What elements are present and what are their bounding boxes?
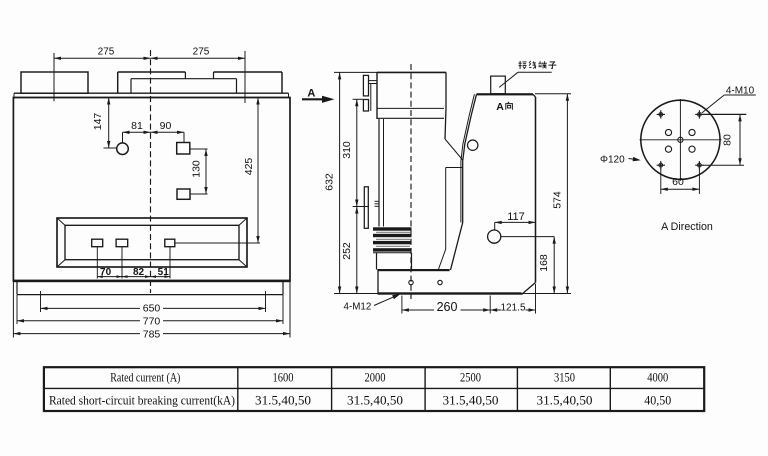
svg-text:2000: 2000 <box>365 370 386 385</box>
svg-text:650: 650 <box>143 303 161 315</box>
svg-text:3150: 3150 <box>554 370 575 385</box>
svg-text:4-M12: 4-M12 <box>344 301 372 312</box>
svg-text:130: 130 <box>191 160 203 178</box>
svg-text:770: 770 <box>143 316 161 328</box>
svg-text:4000: 4000 <box>647 370 668 385</box>
svg-text:90: 90 <box>160 120 172 132</box>
svg-text:40,50: 40,50 <box>644 392 671 407</box>
svg-text:70: 70 <box>100 267 112 278</box>
svg-text:Rated short-circuit breaking c: Rated short-circuit breaking current(kA) <box>49 392 235 407</box>
svg-text:147: 147 <box>92 113 104 131</box>
svg-text:1600: 1600 <box>273 370 294 385</box>
svg-text:31.5,40,50: 31.5,40,50 <box>443 392 499 407</box>
svg-text:275: 275 <box>193 47 210 58</box>
svg-text:275: 275 <box>98 47 115 58</box>
svg-text:252: 252 <box>341 242 353 260</box>
svg-text:60: 60 <box>672 176 684 188</box>
svg-text:121.5: 121.5 <box>500 302 525 313</box>
svg-text:A Direction: A Direction <box>661 221 713 233</box>
svg-text:A: A <box>496 101 504 113</box>
svg-text:31.5,40,50: 31.5,40,50 <box>537 392 593 407</box>
svg-text:A: A <box>307 88 315 100</box>
svg-text:574: 574 <box>551 191 563 209</box>
svg-text:310: 310 <box>341 141 353 159</box>
svg-text:80: 80 <box>722 134 734 146</box>
svg-text:425: 425 <box>243 158 255 176</box>
svg-text:Φ120: Φ120 <box>600 155 625 166</box>
svg-text:Rated current (A): Rated current (A) <box>110 370 180 385</box>
svg-text:81: 81 <box>131 120 143 132</box>
svg-text:31.5,40,50: 31.5,40,50 <box>347 392 403 407</box>
svg-text:117: 117 <box>507 211 525 223</box>
svg-text:2500: 2500 <box>460 370 481 385</box>
svg-text:785: 785 <box>143 329 161 341</box>
svg-text:82: 82 <box>133 267 145 278</box>
svg-text:31.5,40,50: 31.5,40,50 <box>255 392 311 407</box>
svg-text:51: 51 <box>158 267 170 278</box>
svg-text:632: 632 <box>323 173 335 191</box>
svg-text:168: 168 <box>538 254 550 272</box>
svg-text:260: 260 <box>437 300 458 314</box>
